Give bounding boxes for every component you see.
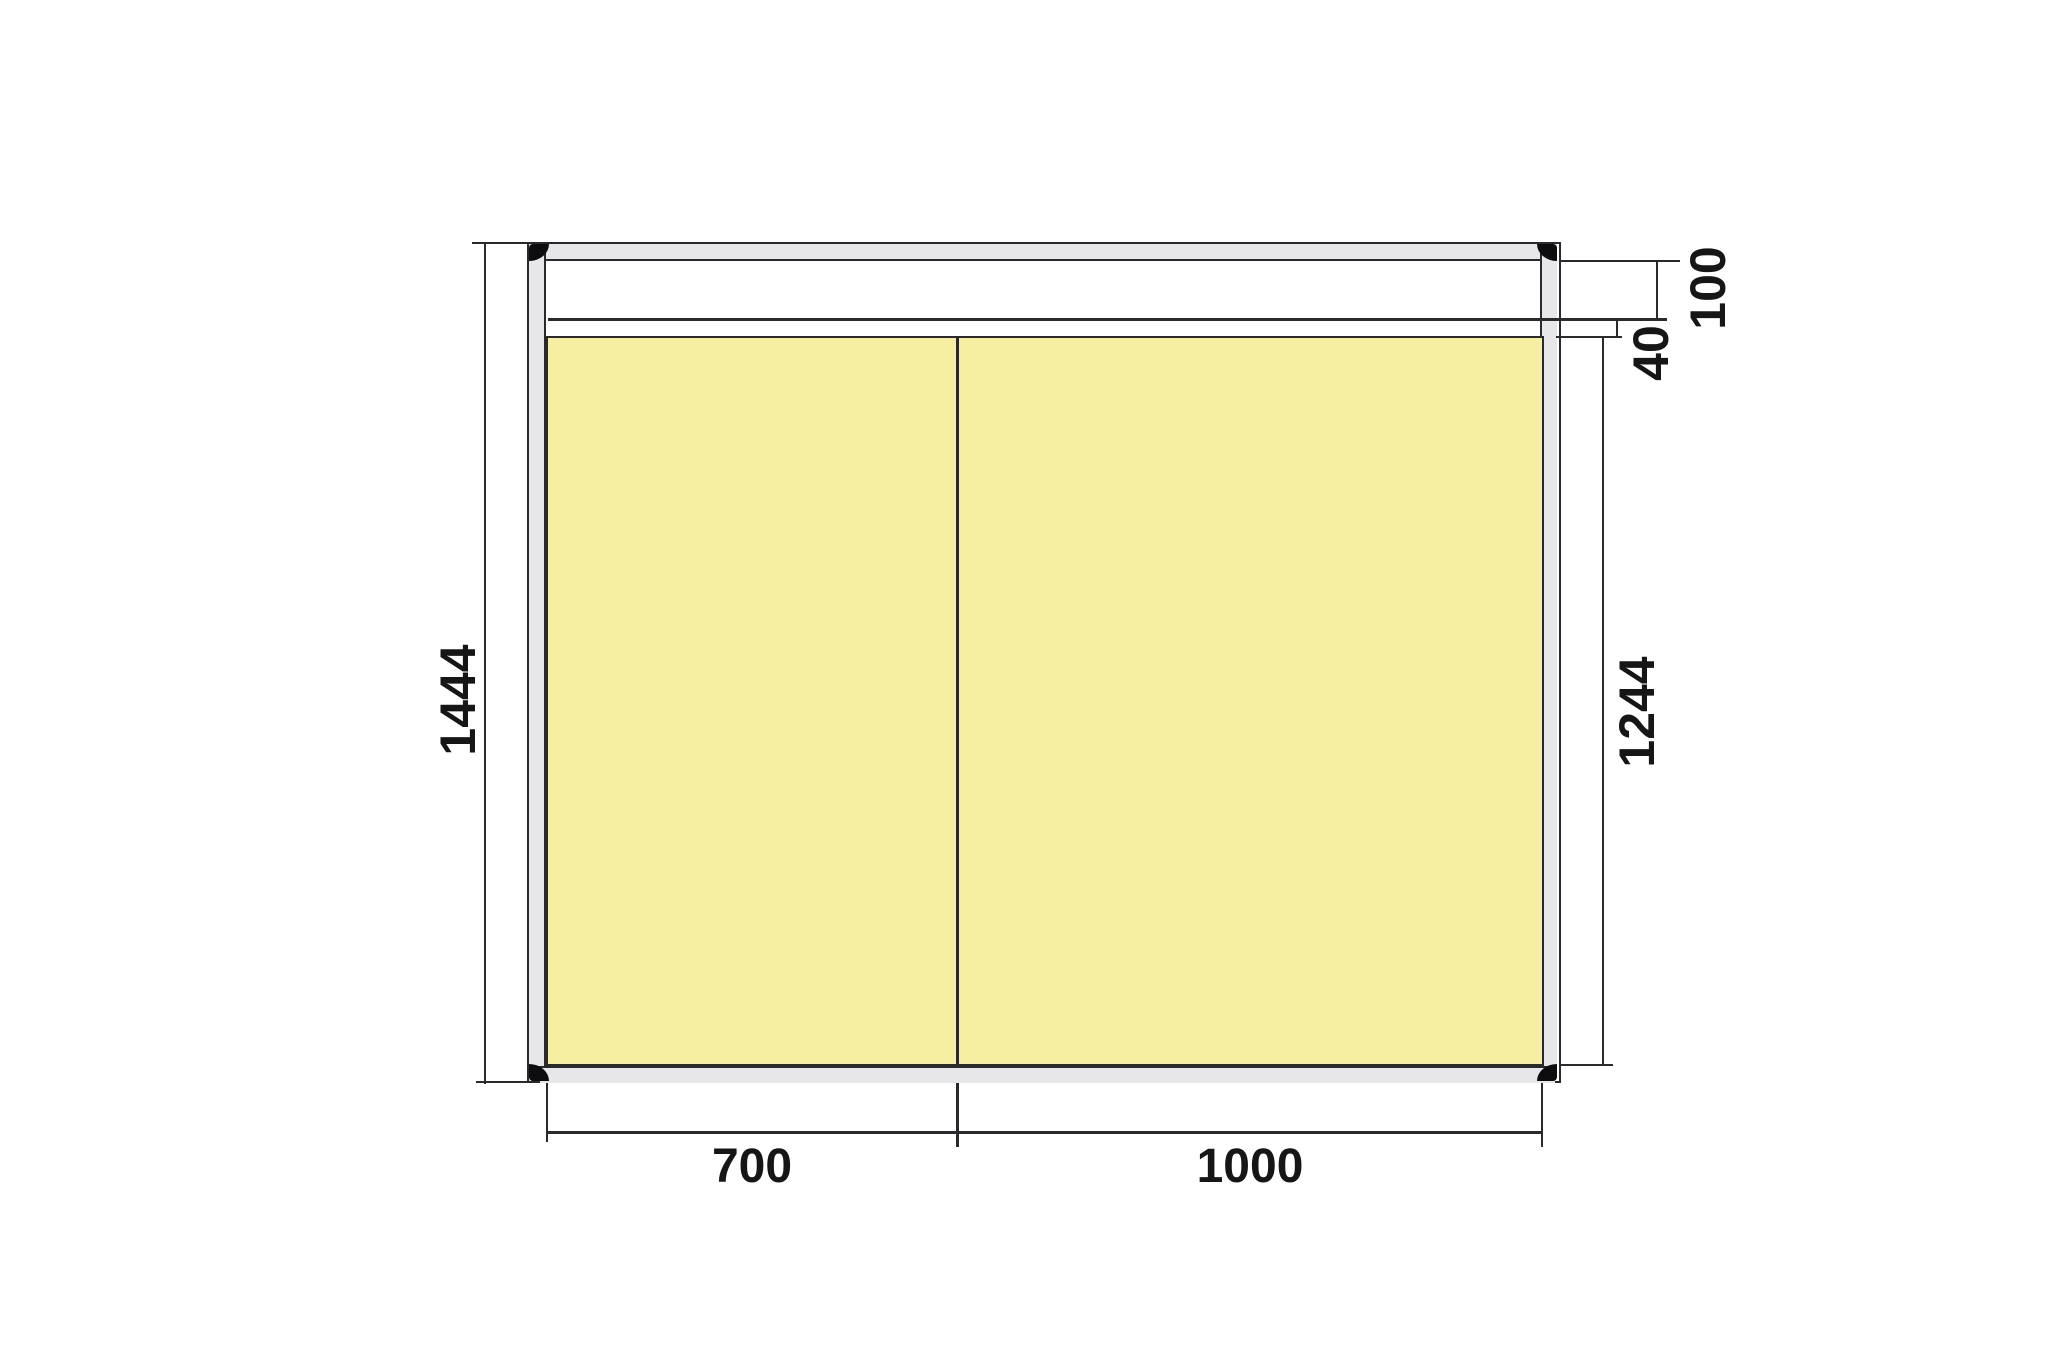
dim-label-overall-height: 1444	[433, 644, 483, 755]
extension-line-overall-bottom	[476, 1081, 540, 1083]
dim-label-right-panel-width: 1000	[1197, 1143, 1304, 1191]
frame-profile-top	[529, 244, 1555, 261]
technical-drawing-canvas: 1444 100 40 1244 700 1000	[0, 0, 2050, 1362]
dimension-line-display-height	[1602, 337, 1604, 1065]
extension-line-header-top	[1559, 260, 1680, 262]
frame-profile-bottom	[529, 1066, 1555, 1083]
dimension-line-panel-widths	[546, 1131, 1543, 1134]
panel-divider-line	[956, 338, 959, 1064]
header-strip-bottom-line	[548, 318, 1667, 321]
dimension-line-header-height	[1656, 261, 1658, 319]
extension-line-bottom-right	[1541, 1083, 1543, 1147]
dim-label-header-height: 100	[1683, 246, 1733, 329]
dim-label-left-panel-width: 700	[712, 1143, 792, 1191]
dim-label-display-height: 1244	[1612, 656, 1662, 767]
display-panel-area	[546, 336, 1544, 1066]
dim-label-header-gap: 40	[1626, 325, 1676, 381]
dimension-line-header-gap	[1616, 319, 1618, 337]
extension-line-gap-bottom	[1556, 336, 1622, 338]
frame-profile-left	[529, 244, 546, 1066]
extension-line-bottom-middle	[956, 1083, 959, 1147]
extension-line-display-bottom	[1561, 1064, 1613, 1066]
